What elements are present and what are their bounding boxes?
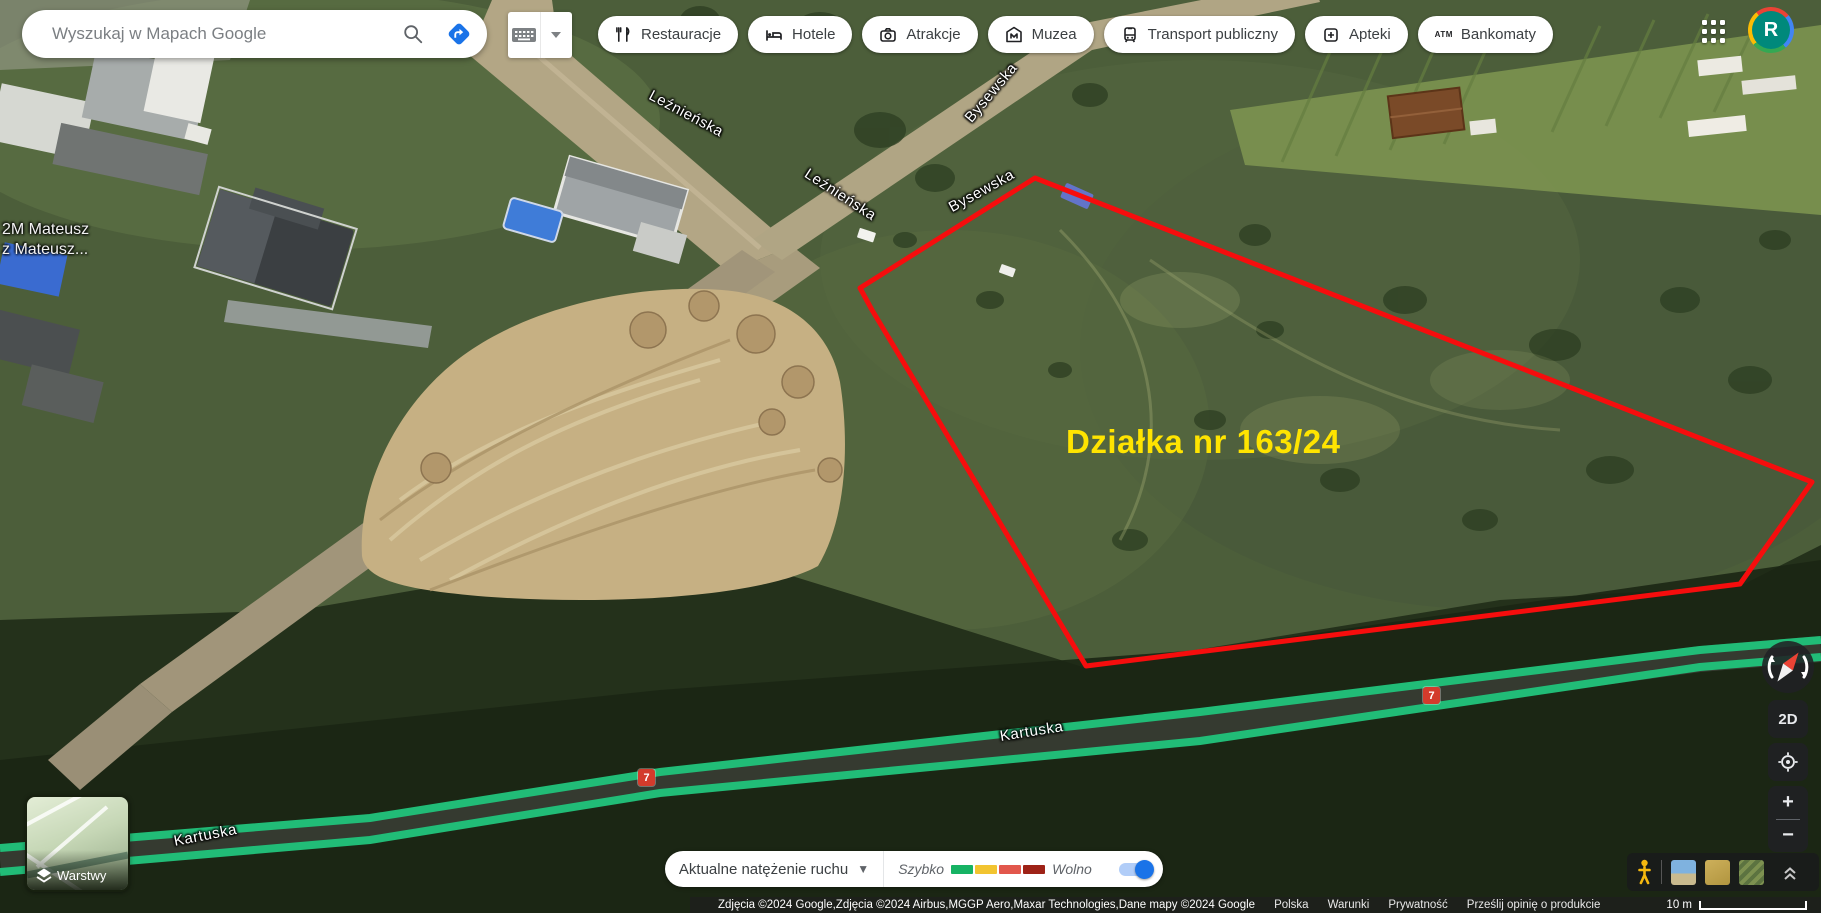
- swatch-fast: [951, 865, 973, 874]
- toggle-track: [1119, 863, 1151, 876]
- swatch-slow: [999, 865, 1021, 874]
- hotel-icon: [765, 26, 783, 44]
- collapse-chevrons-icon[interactable]: [1781, 863, 1799, 881]
- layers-icon: [36, 868, 52, 883]
- traffic-dropdown[interactable]: Aktualne natężenie ruchu ▼: [665, 861, 883, 878]
- footer-link-opinie[interactable]: Prześlij opinię o produkcie: [1467, 899, 1601, 911]
- directions-icon[interactable]: [445, 20, 473, 48]
- search-icon[interactable]: [399, 20, 427, 48]
- satellite-map-canvas[interactable]: [0, 0, 1821, 913]
- traffic-dropdown-label: Aktualne natężenie ruchu: [679, 861, 848, 878]
- poi-label-business[interactable]: 2M Mateusz z Mateusz...: [2, 220, 89, 260]
- transit-icon: [1121, 26, 1139, 44]
- compass-control[interactable]: [1760, 639, 1816, 695]
- search-box[interactable]: [22, 10, 487, 58]
- footer-link-polska[interactable]: Polska: [1274, 899, 1309, 911]
- attractions-icon: [879, 26, 897, 44]
- footer-bar: Zdjęcia ©2024 Google,Zdjęcia ©2024 Airbu…: [690, 897, 1821, 913]
- my-location-icon: [1777, 751, 1799, 773]
- chip-label: Muzea: [1032, 26, 1077, 43]
- chip-restauracje[interactable]: Restauracje: [598, 16, 738, 53]
- toggle-knob: [1135, 860, 1154, 879]
- chip-hotele[interactable]: Hotele: [748, 16, 852, 53]
- chip-label: Transport publiczny: [1148, 26, 1278, 43]
- account-avatar[interactable]: R: [1748, 7, 1794, 53]
- avatar-letter: R: [1752, 11, 1790, 49]
- chip-apteki[interactable]: Apteki: [1305, 16, 1408, 53]
- traffic-legend: Szybko Wolno: [884, 861, 1106, 877]
- chip-label: Apteki: [1349, 26, 1391, 43]
- keyboard-icon[interactable]: [508, 12, 540, 58]
- chip-muzea[interactable]: Muzea: [988, 16, 1094, 53]
- pharmacy-icon: [1322, 26, 1340, 44]
- layers-label-row: Warstwy: [27, 850, 128, 890]
- poi-label-line1: 2M Mateusz: [2, 220, 89, 240]
- atm-icon: ATM: [1435, 30, 1453, 39]
- chip-label: Hotele: [792, 26, 835, 43]
- layers-button[interactable]: Warstwy: [25, 795, 130, 892]
- scale-label: 10 m: [1666, 899, 1692, 911]
- traffic-legend-swatches: [951, 865, 1045, 874]
- zoom-out-button[interactable]: −: [1768, 820, 1808, 853]
- traffic-bar: Aktualne natężenie ruchu ▼ Szybko Wolno: [665, 851, 1163, 887]
- footer-link-prywatnosc[interactable]: Prywatność: [1388, 899, 1447, 911]
- layers-label: Warstwy: [57, 868, 106, 883]
- zoom-in-button[interactable]: +: [1768, 786, 1808, 819]
- zoom-control: + −: [1768, 786, 1808, 852]
- scale-bar: [1699, 901, 1807, 910]
- chip-transport-publiczny[interactable]: Transport publiczny: [1104, 16, 1295, 53]
- my-location-button[interactable]: [1768, 743, 1808, 781]
- divider: [1661, 860, 1662, 884]
- input-tools-button[interactable]: [508, 12, 572, 58]
- photo-thumbnail-3[interactable]: [1739, 860, 1764, 885]
- map-attribution: Zdjęcia ©2024 Google,Zdjęcia ©2024 Airbu…: [718, 899, 1255, 911]
- pegman-icon[interactable]: [1637, 859, 1652, 885]
- restaurant-icon: [615, 26, 632, 43]
- chevron-down-icon: ▼: [857, 862, 869, 876]
- parcel-label: Działka nr 163/24: [1066, 423, 1341, 461]
- category-chips: Restauracje Hotele Atrakcje Muzea Transp…: [598, 16, 1553, 53]
- photo-thumbnail-2[interactable]: [1705, 860, 1730, 885]
- swatch-very-slow: [1023, 865, 1045, 874]
- chip-bankomaty[interactable]: ATM Bankomaty: [1418, 16, 1553, 53]
- search-input[interactable]: [50, 23, 381, 45]
- poi-label-line2: z Mateusz...: [2, 240, 89, 260]
- imagery-bar: [1627, 853, 1819, 891]
- map-2d-button[interactable]: 2D: [1768, 700, 1808, 738]
- chip-atrakcje[interactable]: Atrakcje: [862, 16, 977, 53]
- legend-slow-label: Wolno: [1052, 861, 1092, 877]
- museum-icon: [1005, 26, 1023, 44]
- chip-label: Atrakcje: [906, 26, 960, 43]
- photo-thumbnail-1[interactable]: [1671, 860, 1696, 885]
- map-scale: 10 m: [1666, 899, 1807, 911]
- legend-fast-label: Szybko: [898, 861, 944, 877]
- traffic-toggle[interactable]: [1106, 863, 1163, 876]
- google-maps-app: Leźnieńska Leźnieńska Bysewska Bysewska …: [0, 0, 1821, 913]
- chip-label: Bankomaty: [1461, 26, 1536, 43]
- google-apps-icon[interactable]: [1702, 20, 1726, 44]
- route-shield-7-right: 7: [1423, 687, 1440, 704]
- input-tools-caret-icon[interactable]: [541, 12, 573, 58]
- swatch-medium: [975, 865, 997, 874]
- chip-label: Restauracje: [641, 26, 721, 43]
- footer-link-warunki[interactable]: Warunki: [1328, 899, 1370, 911]
- route-shield-7-left: 7: [638, 769, 655, 786]
